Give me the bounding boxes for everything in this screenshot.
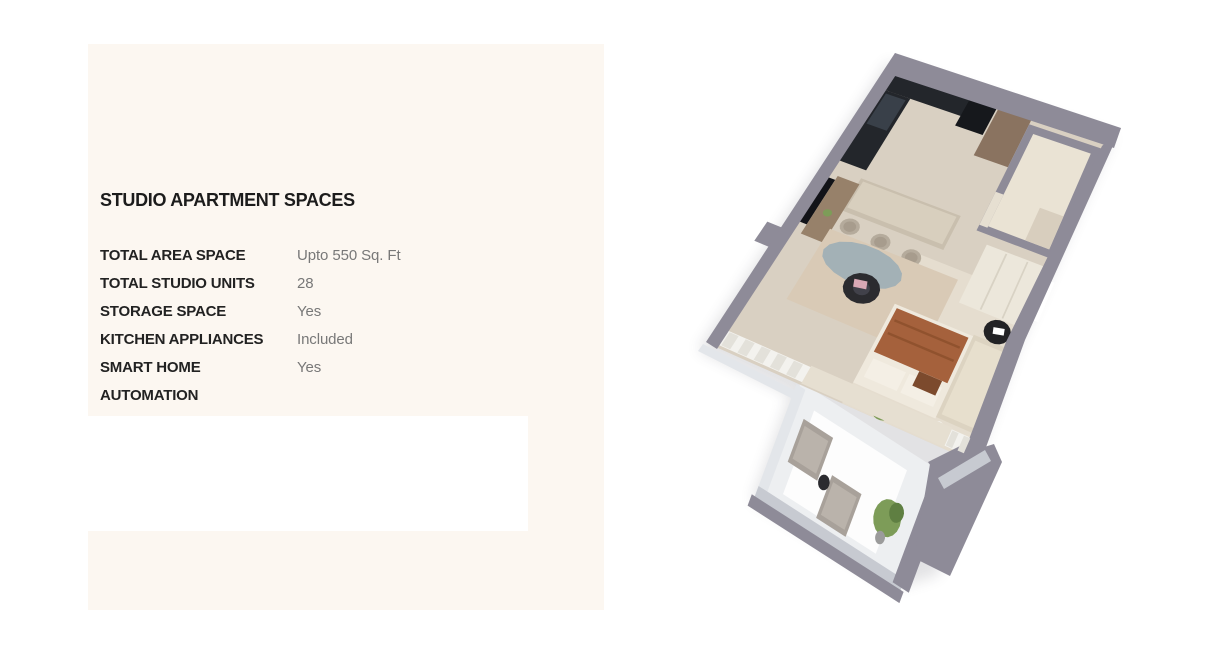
spec-row-storage: STORAGE SPACE Yes (100, 298, 604, 326)
spec-row-total-units: TOTAL STUDIO UNITS 28 (100, 270, 604, 298)
spec-value: Yes (297, 298, 321, 326)
spec-label: KITCHEN APPLIANCES (100, 326, 297, 354)
floorplan-shapes (698, 53, 1121, 603)
spec-label: TOTAL AREA SPACE (100, 242, 297, 270)
spec-panel-content: STUDIO APARTMENT SPACES TOTAL AREA SPACE… (88, 44, 604, 610)
section-title: STUDIO APARTMENT SPACES (100, 190, 604, 211)
spec-row-total-area: TOTAL AREA SPACE Upto 550 Sq. Ft (100, 242, 604, 270)
page: STUDIO APARTMENT SPACES TOTAL AREA SPACE… (0, 0, 1214, 656)
spec-row-kitchen: KITCHEN APPLIANCES Included (100, 326, 604, 354)
spec-value: 28 (297, 270, 314, 298)
spec-label: SMART HOME AUTOMATION (100, 354, 297, 410)
studio-specs-panel: STUDIO APARTMENT SPACES TOTAL AREA SPACE… (88, 44, 604, 610)
spec-label: STORAGE SPACE (100, 298, 297, 326)
spec-row-smart-home: SMART HOME AUTOMATION Yes (100, 354, 604, 410)
spec-label: TOTAL STUDIO UNITS (100, 270, 297, 298)
spec-value: Yes (297, 354, 321, 382)
empty-media-placeholder (88, 416, 528, 531)
spec-value: Included (297, 326, 353, 354)
spec-value: Upto 550 Sq. Ft (297, 242, 401, 270)
